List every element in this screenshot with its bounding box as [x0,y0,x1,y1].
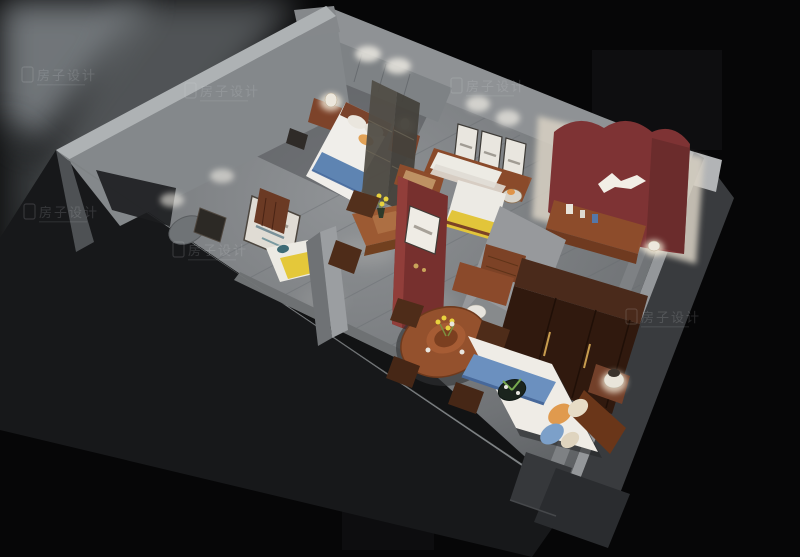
watermark-text: 房子设计 [200,84,260,100]
bedroom1-lamp-left [325,93,337,107]
wall-glow [160,193,184,207]
watermark-subtext-bar [466,95,514,97]
watermark-text: 房子设计 [37,68,97,84]
watermark-text: 房子设计 [39,205,99,221]
partition-knob [414,264,419,269]
master-lamp2-top [608,369,620,377]
master-red-wall-shade [646,138,690,254]
apartment-3d-render: 房子设计房子设计房子设计房子设计房子设计房子设计 [0,0,800,557]
watermark-subtext-bar [188,259,236,261]
console-item [566,204,573,214]
master-lamp [648,241,660,251]
centerpiece-flower [436,320,441,325]
render-viewport: 房子设计房子设计房子设计房子设计房子设计房子设计 [0,0,800,557]
watermark-text: 房子设计 [466,79,526,95]
watermark-text: 房子设计 [188,243,248,259]
sofa-table-orange [507,189,515,195]
wall-glow [385,58,411,74]
plate-candle [516,391,520,395]
table-cup [460,350,465,355]
watermark-subtext-bar [641,326,689,328]
partition-knob [422,268,426,272]
wall-glow [466,96,490,112]
console-item [592,214,598,223]
wall-glow [355,46,381,62]
flower [380,202,385,207]
wall-glow [496,110,520,126]
watermark-subtext-bar [39,221,87,223]
flower [384,197,389,202]
centerpiece-flower [446,326,451,331]
table-cup [426,348,431,353]
console-item [580,210,585,218]
watermark-text: 房子设计 [641,310,701,326]
wall-glow [210,169,234,183]
table-cup [450,322,455,327]
watermark-subtext-bar [200,100,248,102]
watermark-subtext-bar [37,84,85,86]
plate-candle [504,385,508,389]
centerpiece-flower [442,316,447,321]
